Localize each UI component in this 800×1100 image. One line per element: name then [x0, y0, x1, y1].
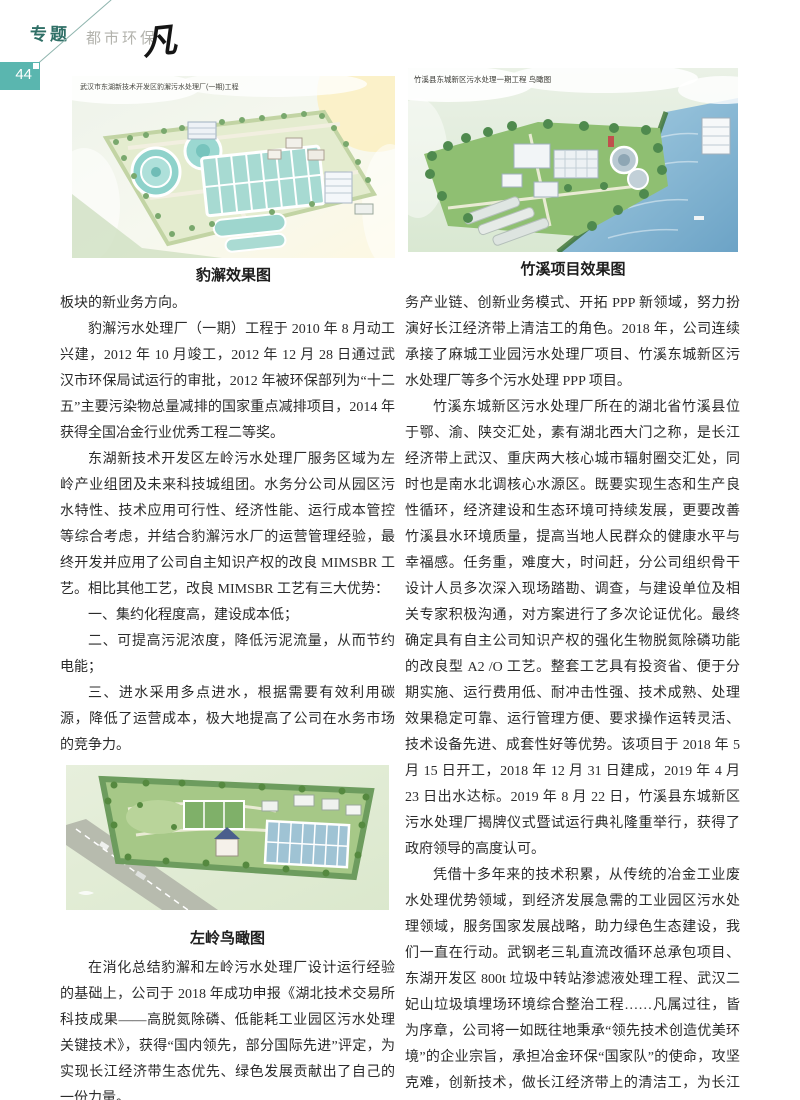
- article-right-column: 务产业链、创新业务模式、开拓 PPP 新领域，努力扮演好长江经济带上清洁工的角色…: [405, 291, 740, 1100]
- figure-zuoling: 左岭鸟瞰图: [66, 765, 389, 952]
- figure-baoxie: 武汉市东湖新技术开发区豹澥污水处理厂(一期)工程 豹澥效果图: [72, 76, 395, 285]
- list-item-advantage-3: 三、进水采用多点进水，根据需要有效利用碳源，降低了运营成本，极大地提高了公司在水…: [60, 681, 395, 759]
- sports-courts: [184, 801, 244, 829]
- paragraph: 务产业链、创新业务模式、开拓 PPP 新领域，努力扮演好长江经济带上清洁工的角色…: [405, 291, 740, 395]
- figure3-caption: 左岭鸟瞰图: [66, 926, 389, 952]
- paragraph: 东湖新技术开发区左岭污水处理厂服务区域为左岭产业组团及未来科技城组团。水务分公司…: [60, 447, 395, 603]
- aeration-basins: [265, 821, 349, 867]
- magazine-page: 专题 都市环保 凡 44: [0, 0, 800, 1100]
- zuoling-aerial-rendering-image: [66, 765, 389, 910]
- page-number-corner-mark: [33, 63, 39, 69]
- boat: [694, 216, 704, 220]
- figure2-overlay-title: 竹溪县东城新区污水处理一期工程 鸟瞰图: [414, 74, 551, 84]
- baoxie-aerial-rendering-image: 武汉市东湖新技术开发区豹澥污水处理厂(一期)工程: [72, 76, 395, 258]
- page-number: 44: [15, 66, 32, 83]
- figure2-caption: 竹溪项目效果图: [408, 258, 738, 279]
- paragraph: 在消化总结豹澥和左岭污水处理厂设计运行经验的基础上，公司于 2018 年成功申报…: [60, 956, 395, 1100]
- paragraph: 豹澥污水处理厂（一期）工程于 2010 年 8 月动工兴建，2012 年 10 …: [60, 317, 395, 447]
- paragraph: 凭借十多年来的技术积累，从传统的冶金工业废水处理优势领域，到经济发展急需的工业园…: [405, 863, 740, 1100]
- aeration-basins: [201, 146, 324, 216]
- figure-zhuxi: 竹溪县东城新区污水处理一期工程 鸟瞰图 竹溪项目效果图: [408, 68, 738, 279]
- brand-logo-icon: 凡: [140, 12, 179, 64]
- list-item-advantage-2: 二、可提高污泥浓度，降低污泥流量，从而节约电能；: [60, 629, 395, 681]
- office-building: [702, 118, 730, 154]
- paragraph: 板块的新业务方向。: [60, 291, 395, 317]
- page-number-box: 44: [0, 62, 40, 90]
- zhuxi-aerial-rendering-image: 竹溪县东城新区污水处理一期工程 鸟瞰图: [408, 68, 738, 252]
- figure1-overlay-title: 武汉市东湖新技术开发区豹澥污水处理厂(一期)工程: [80, 82, 239, 91]
- paragraph: 竹溪东城新区污水处理厂所在的湖北省竹溪县位于鄂、渝、陕交汇处，素有湖北西大门之称…: [405, 395, 740, 863]
- figure1-caption: 豹澥效果图: [72, 264, 395, 285]
- list-item-advantage-1: 一、集约化程度高，建设成本低；: [60, 603, 395, 629]
- article-left-column: 板块的新业务方向。 豹澥污水处理厂（一期）工程于 2010 年 8 月动工兴建，…: [60, 291, 395, 1100]
